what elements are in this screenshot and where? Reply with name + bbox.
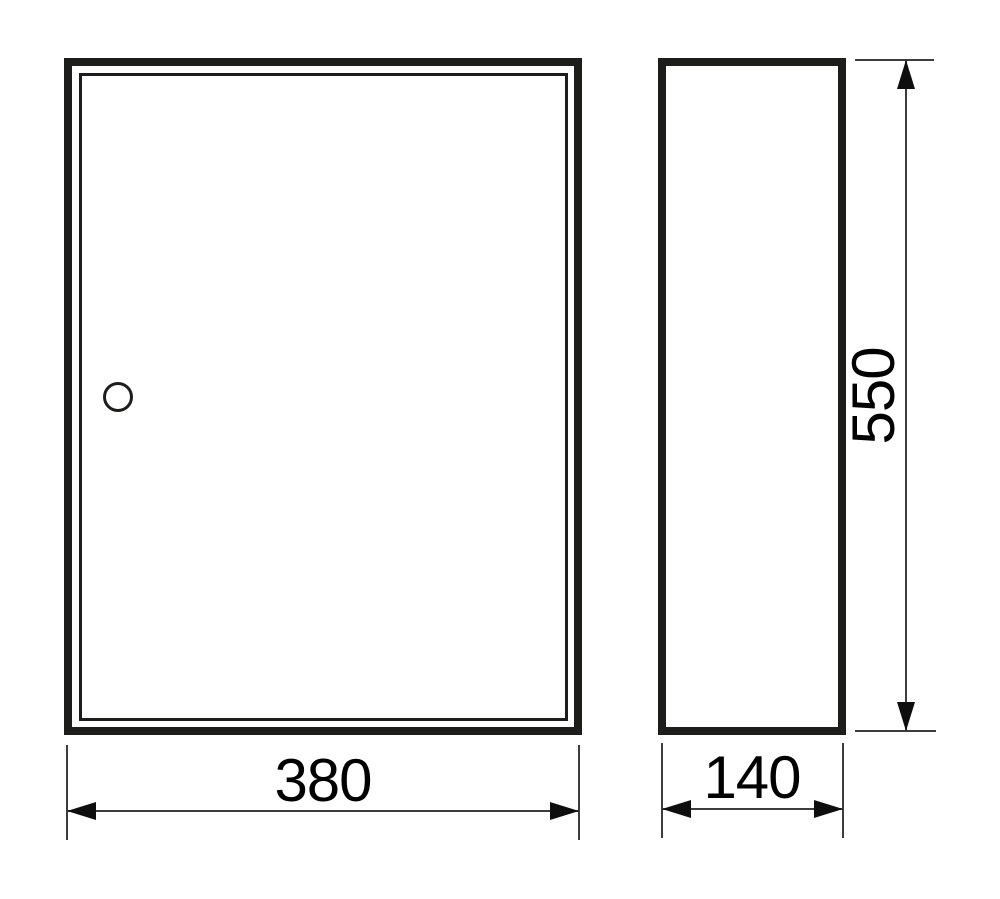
width-dimension-label: 380: [274, 747, 371, 814]
height-arrowhead-bottom: [897, 702, 915, 731]
width-arrowhead-left: [67, 802, 96, 820]
side-view-outline: [662, 62, 842, 731]
depth-dimension: 140: [662, 743, 843, 838]
dimension-drawing: 380 140 550: [0, 0, 1000, 899]
technical-drawing-canvas: 380 140 550: [0, 0, 1000, 899]
width-dimension: 380: [67, 745, 579, 840]
depth-arrowhead-left: [662, 800, 691, 818]
height-dimension-label: 550: [840, 347, 907, 444]
height-dimension: 550: [840, 60, 936, 731]
depth-dimension-label: 140: [703, 744, 800, 811]
depth-arrowhead-right: [814, 800, 843, 818]
front-door-outline: [81, 75, 567, 720]
height-arrowhead-top: [897, 60, 915, 89]
front-view: [68, 62, 578, 731]
width-arrowhead-right: [550, 802, 579, 820]
lock-hole-icon: [105, 384, 132, 411]
front-view-outline: [68, 62, 578, 731]
side-view: [662, 62, 842, 731]
